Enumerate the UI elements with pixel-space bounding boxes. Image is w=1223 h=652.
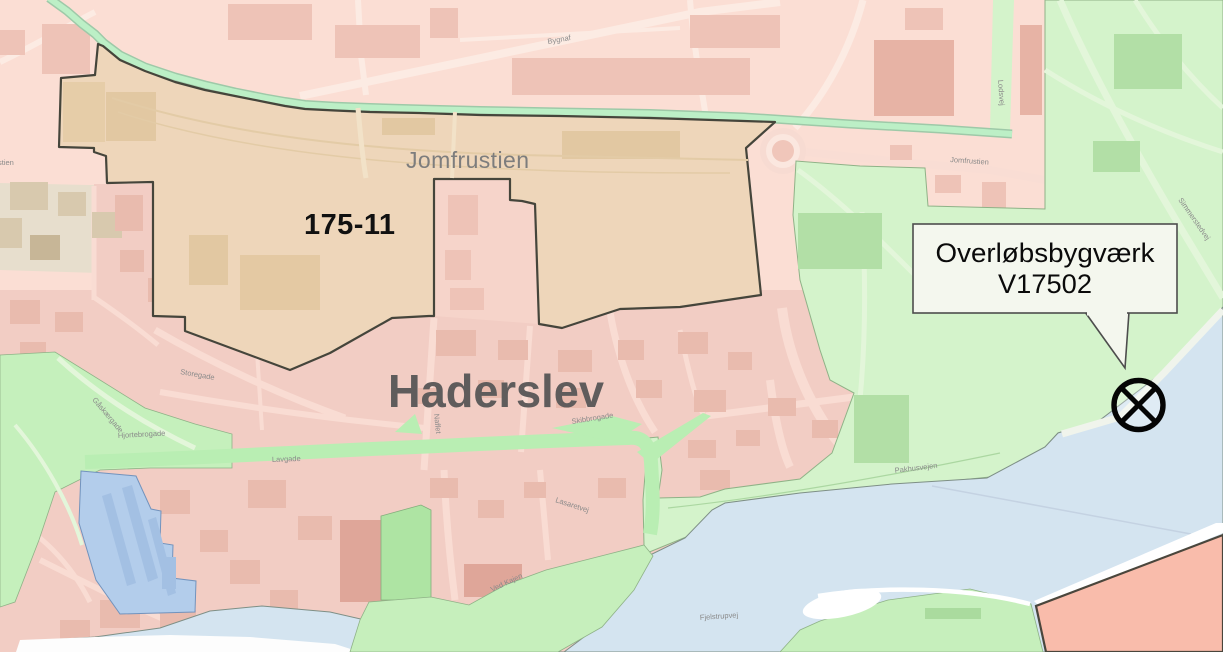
- svg-text:Lavgade: Lavgade: [272, 454, 301, 464]
- svg-text:175-11: 175-11: [304, 209, 395, 241]
- svg-text:Jomfrustien: Jomfrustien: [406, 147, 529, 173]
- svg-text:stien: stien: [0, 158, 14, 167]
- svg-text:Haderslev: Haderslev: [388, 365, 604, 417]
- svg-text:Overløbsbygværk: Overløbsbygværk: [936, 238, 1156, 268]
- svg-text:Lodsvej: Lodsvej: [996, 80, 1007, 107]
- svg-text:V17502: V17502: [998, 269, 1092, 299]
